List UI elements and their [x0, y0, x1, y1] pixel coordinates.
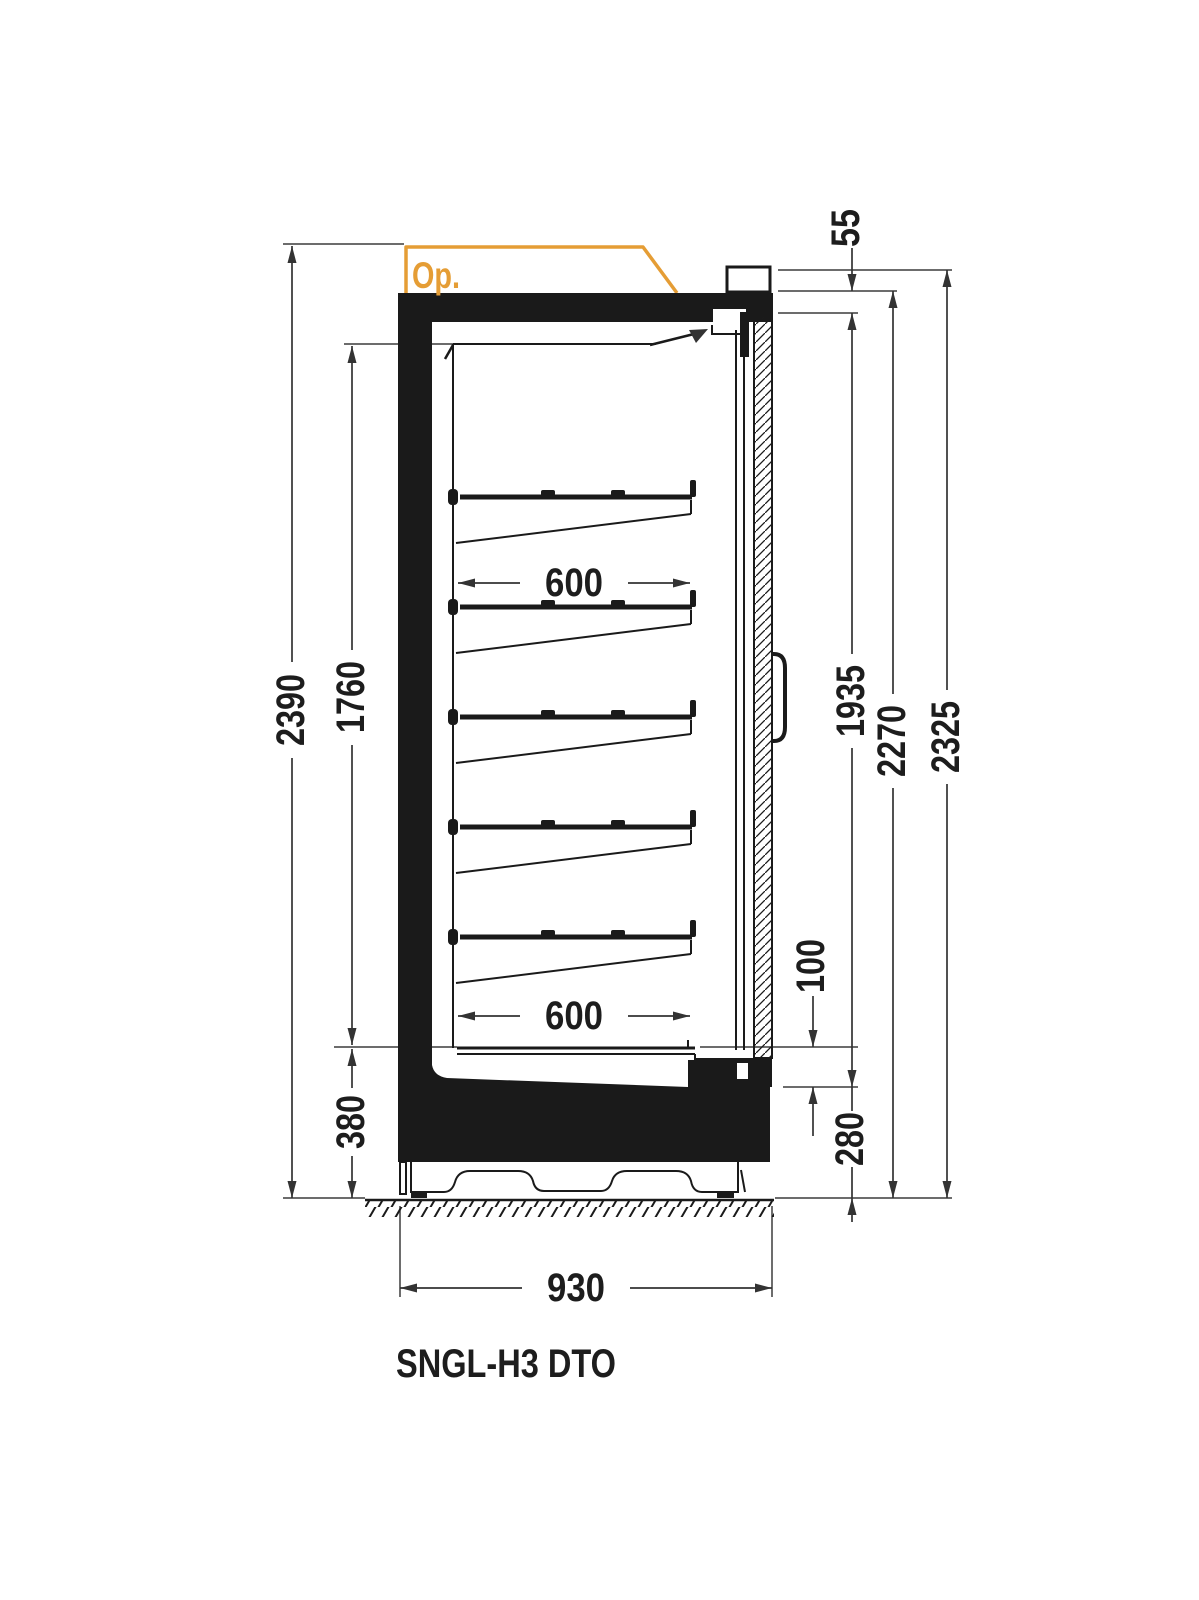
- plinth: [411, 1162, 738, 1192]
- cabinet-body: [398, 293, 773, 1198]
- foot-left: [411, 1191, 427, 1198]
- dim-shelf-depth-upper: 600: [545, 561, 603, 605]
- dim-overall-depth: 930: [547, 1266, 605, 1310]
- door-glass: [754, 316, 772, 1058]
- back-wall: [398, 293, 432, 1162]
- shelf-4: [448, 810, 696, 873]
- technical-drawing: 2390 1760 380 55 1935 100 280 2270 2325 …: [0, 0, 1199, 1600]
- dim-base-height-left: 380: [329, 1095, 373, 1149]
- ground: [365, 1200, 774, 1217]
- dim-sill-height-right: 280: [828, 1112, 872, 1166]
- dim-overall-height-with-canopy: 2390: [269, 674, 313, 746]
- shelves: [448, 480, 696, 983]
- shelf-3: [448, 700, 696, 763]
- drawing-page: 2390 1760 380 55 1935 100 280 2270 2325 …: [0, 0, 1199, 1600]
- shelf-5: [448, 920, 696, 983]
- shelf-1: [448, 480, 696, 543]
- door-handle: [772, 654, 785, 741]
- dim-shelf-depth-lower: 600: [545, 994, 603, 1038]
- dim-door-top-height: 2270: [870, 705, 914, 777]
- foot-right: [717, 1191, 734, 1198]
- dim-deck-to-door-gap: 100: [789, 939, 833, 993]
- inner-pane: [736, 330, 744, 1050]
- dim-door-glass-height: 1935: [829, 665, 873, 737]
- model-title: SNGL-H3 DTO: [396, 1342, 616, 1386]
- glass-door: [727, 267, 785, 1087]
- canopy-option-label: Op.: [412, 255, 460, 296]
- door-top-bracket: [727, 267, 770, 292]
- dim-overall-height-right: 2325: [924, 701, 968, 773]
- dim-canopy-step: 55: [824, 209, 868, 247]
- base-block: [432, 1060, 770, 1162]
- door-bottom-rail: [752, 1058, 772, 1087]
- air-flow-arrow: [650, 333, 698, 345]
- dim-interior-height: 1760: [329, 661, 373, 733]
